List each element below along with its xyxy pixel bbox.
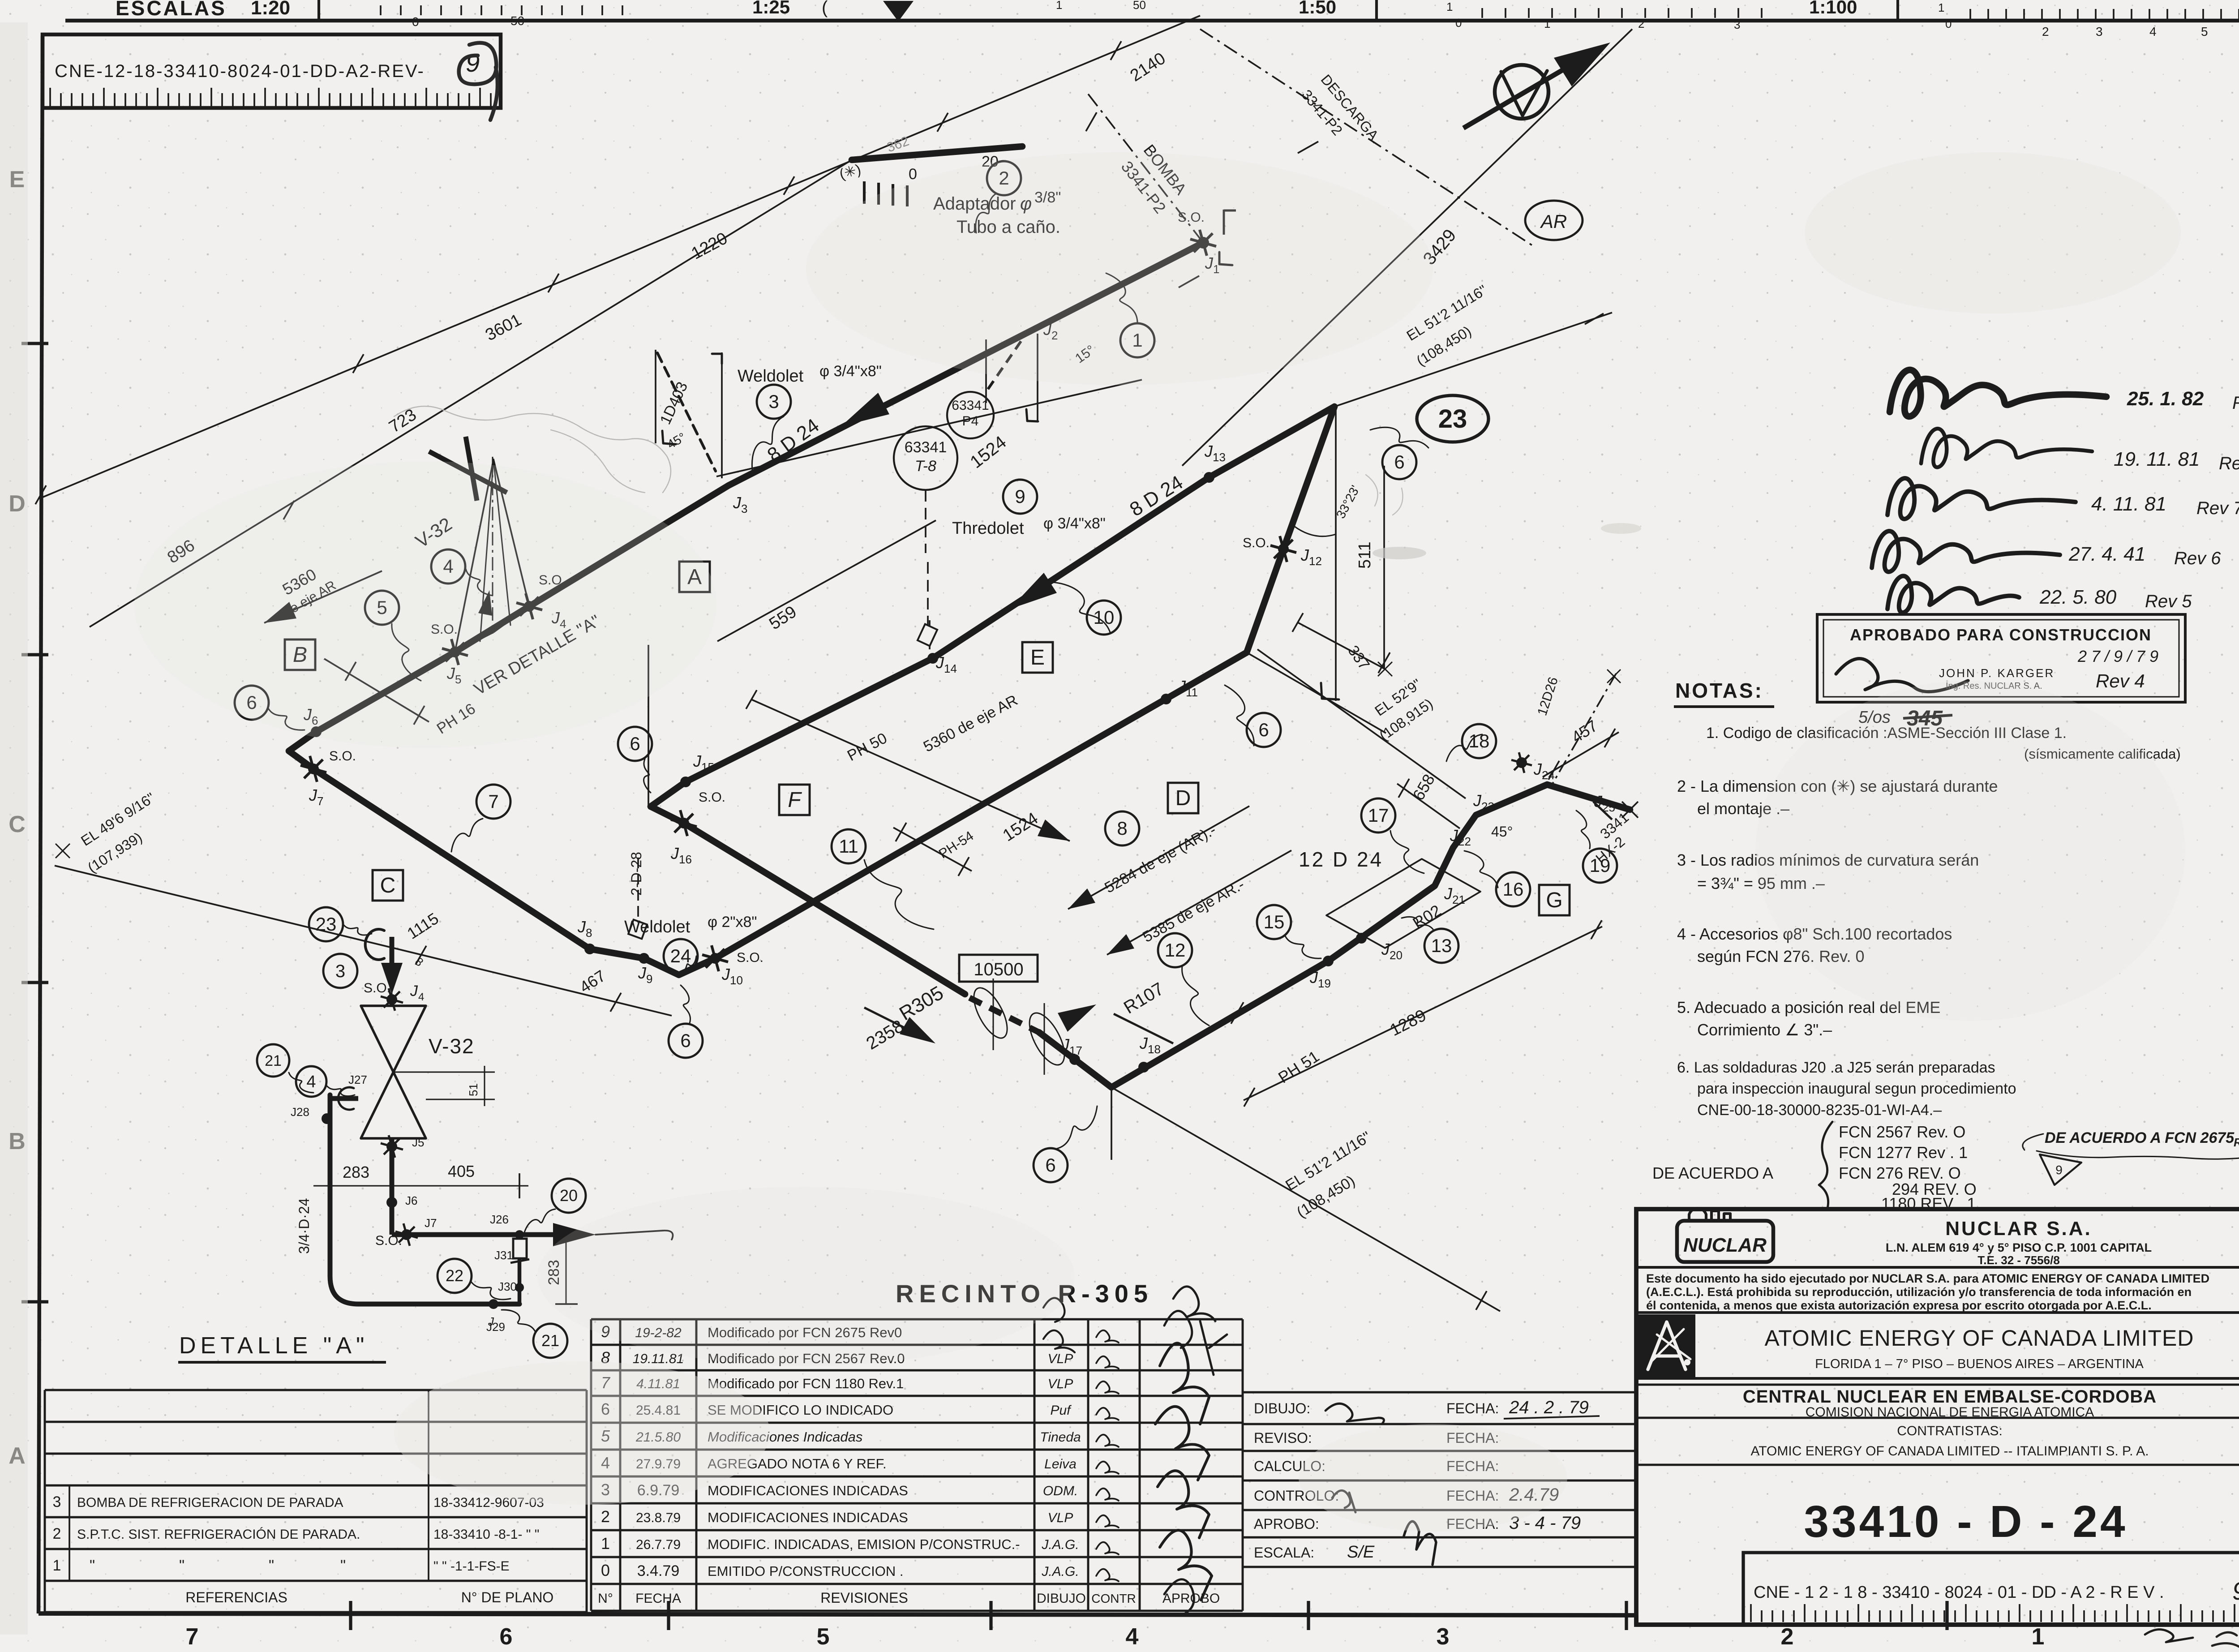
svg-text:9: 9 xyxy=(466,49,480,77)
svg-text:26.7.79: 26.7.79 xyxy=(636,1537,681,1552)
svg-text:Este documento ha sido ejecuta: Este documento ha sido ejecutado por NUC… xyxy=(1646,1272,2209,1285)
svg-text:J7: J7 xyxy=(425,1216,437,1230)
svg-text:φ 3/4"x8": φ 3/4"x8" xyxy=(1043,515,1106,532)
svg-text:9: 9 xyxy=(646,972,652,986)
svg-text:J: J xyxy=(670,844,679,862)
svg-text:2: 2 xyxy=(1638,17,1644,30)
svg-text:3: 3 xyxy=(2096,25,2103,39)
svg-text:ODM.: ODM. xyxy=(1043,1484,1078,1498)
svg-text:S.O.: S.O. xyxy=(364,981,390,995)
svg-text:J: J xyxy=(1061,1035,1070,1054)
svg-text:Weldolet: Weldolet xyxy=(738,367,804,386)
svg-text:0: 0 xyxy=(1945,17,1952,30)
svg-text:V-32: V-32 xyxy=(429,1034,475,1058)
svg-text:2: 2 xyxy=(2042,25,2049,39)
svg-text:1:100: 1:100 xyxy=(1809,0,1857,17)
svg-text:1: 1 xyxy=(53,1557,61,1574)
svg-text:1:50: 1:50 xyxy=(1299,0,1336,17)
svg-text:283: 283 xyxy=(343,1163,369,1181)
svg-text:J31: J31 xyxy=(494,1249,513,1262)
svg-text:(: ( xyxy=(822,0,828,17)
svg-text:D: D xyxy=(1175,786,1191,810)
svg-text:0: 0 xyxy=(412,15,419,29)
svg-text:24: 24 xyxy=(670,945,691,966)
svg-text:22. 5. 80: 22. 5. 80 xyxy=(2039,586,2117,608)
svg-text:S.O.: S.O. xyxy=(737,950,763,965)
svg-text:6: 6 xyxy=(1258,719,1269,740)
svg-text:CNE-12-18-33410-8024-01-DD-A2-: CNE-12-18-33410-8024-01-DD-A2-REV- xyxy=(55,61,425,81)
svg-text:Rev0: Rev0 xyxy=(2234,1136,2239,1149)
svg-text:J: J xyxy=(1309,968,1318,987)
svg-text:REFERENCIAS: REFERENCIAS xyxy=(185,1589,287,1605)
svg-text:20: 20 xyxy=(560,1186,578,1205)
svg-text:13: 13 xyxy=(1213,451,1226,464)
svg-text:27. 4. 41: 27. 4. 41 xyxy=(2068,543,2145,565)
svg-text:12 D 24: 12 D 24 xyxy=(1299,848,1383,871)
svg-text:Leiva: Leiva xyxy=(1044,1457,1077,1472)
svg-text:Tineda: Tineda xyxy=(1040,1430,1081,1445)
svg-text:24 . 2 . 79: 24 . 2 . 79 xyxy=(1509,1398,1589,1417)
svg-text:Corrimiento ∠ 3".–: Corrimiento ∠ 3".– xyxy=(1697,1021,1832,1039)
svg-text:VLP: VLP xyxy=(1048,1352,1073,1366)
svg-text:FCN 276 REV. O: FCN 276 REV. O xyxy=(1839,1164,1961,1182)
svg-text:S.O.: S.O. xyxy=(699,790,725,805)
svg-text:G: G xyxy=(1546,888,1562,912)
svg-text:DE ACUERDO A: DE ACUERDO A xyxy=(1652,1164,1773,1182)
svg-text:17: 17 xyxy=(1069,1044,1082,1057)
svg-text:F: F xyxy=(788,788,802,812)
svg-text:15: 15 xyxy=(1264,911,1285,932)
svg-text:23: 23 xyxy=(316,914,337,935)
svg-text:ESCALAS: ESCALAS xyxy=(116,0,227,20)
svg-text:Rev 7: Rev 7 xyxy=(2196,498,2239,518)
svg-text:3: 3 xyxy=(1734,18,1740,31)
svg-text:Puf: Puf xyxy=(1050,1403,1072,1418)
svg-text:J: J xyxy=(1300,546,1309,564)
svg-text:Rev 9: Rev 9 xyxy=(2232,393,2239,413)
svg-text:MODIFICACIONES INDICADAS: MODIFICACIONES INDICADAS xyxy=(708,1483,908,1498)
svg-text:AR: AR xyxy=(1540,211,1567,232)
svg-text:16: 16 xyxy=(1503,879,1524,900)
svg-text:J28: J28 xyxy=(291,1105,309,1119)
svg-text:J27: J27 xyxy=(348,1073,367,1086)
svg-text:CONTR: CONTR xyxy=(1091,1592,1136,1605)
svg-text:6. Las soldaduras J20 .a J25: 6. Las soldaduras J20 .a J25 serán prepa… xyxy=(1677,1059,1995,1076)
svg-text:9: 9 xyxy=(2055,1163,2063,1177)
svg-text:CNE-00-18-30000-8235-01-WI-A4.: CNE-00-18-30000-8235-01-WI-A4.– xyxy=(1697,1102,1942,1119)
svg-text:ATOMIC ENERGY OF CANADA LIMITE: ATOMIC ENERGY OF CANADA LIMITED xyxy=(1765,1326,2194,1351)
svg-text:J: J xyxy=(1450,826,1458,845)
svg-text:9: 9 xyxy=(1015,486,1025,507)
svg-text:S.O.: S.O. xyxy=(329,749,356,764)
svg-text:NOTAS:: NOTAS: xyxy=(1675,679,1763,702)
svg-text:6: 6 xyxy=(1394,451,1404,472)
svg-text:16: 16 xyxy=(679,853,692,866)
svg-text:2: 2 xyxy=(1781,1624,1794,1650)
svg-text:": " xyxy=(90,1557,95,1574)
svg-text:para inspeccion inaugural segu: para inspeccion inaugural segun procedim… xyxy=(1697,1080,2016,1097)
svg-text:EMITIDO P/CONSTRUCCION .: EMITIDO P/CONSTRUCCION . xyxy=(708,1563,903,1579)
svg-text:J: J xyxy=(488,1315,494,1328)
svg-text:3.4.79: 3.4.79 xyxy=(637,1562,680,1579)
svg-text:0: 0 xyxy=(909,166,917,183)
svg-text:63341: 63341 xyxy=(905,439,947,456)
svg-text:Rev 8: Rev 8 xyxy=(2219,454,2239,473)
svg-text:2 7 / 9 / 7 9: 2 7 / 9 / 7 9 xyxy=(2077,647,2158,665)
svg-text:7: 7 xyxy=(317,794,323,808)
svg-text:CNE - 1 2 - 1 8 - 33410 - 8024: CNE - 1 2 - 1 8 - 33410 - 8024 - 01 - DD… xyxy=(1754,1583,2164,1602)
svg-text:FCN 1277 Rev . 1: FCN 1277 Rev . 1 xyxy=(1839,1143,1968,1162)
svg-text:REVISO:: REVISO: xyxy=(1254,1430,1312,1446)
svg-text:J26: J26 xyxy=(490,1213,509,1226)
svg-text:APROBADO PARA CONSTRUCCION: APROBADO PARA CONSTRUCCION xyxy=(1850,626,2152,644)
svg-text:1180 REV . 1: 1180 REV . 1 xyxy=(1881,1194,1976,1213)
svg-text:φ 2"x8": φ 2"x8" xyxy=(708,914,757,931)
svg-text:2-D-28: 2-D-28 xyxy=(628,852,644,896)
svg-text:5: 5 xyxy=(2201,25,2208,39)
svg-text:MODIFICACIONES INDICADAS: MODIFICACIONES INDICADAS xyxy=(708,1510,908,1525)
svg-text:J: J xyxy=(1444,884,1453,903)
svg-text:Modificado por FCN 1180 Rev.1: Modificado por FCN 1180 Rev.1 xyxy=(708,1376,904,1391)
svg-text:22: 22 xyxy=(446,1266,463,1285)
svg-text:7: 7 xyxy=(186,1624,199,1650)
svg-text:3/4·D·24: 3/4·D·24 xyxy=(296,1198,312,1254)
svg-text:6: 6 xyxy=(630,733,640,754)
svg-text:él contenida, a menos que ex: él contenida, a menos que exista autoriz… xyxy=(1646,1299,2152,1312)
svg-text:1: 1 xyxy=(1544,17,1550,30)
svg-text:45°: 45° xyxy=(1491,824,1513,840)
svg-text:J: J xyxy=(1473,791,1482,810)
svg-text:5: 5 xyxy=(817,1624,830,1650)
svg-text:4: 4 xyxy=(2149,25,2157,39)
svg-text:511: 511 xyxy=(1355,541,1374,569)
svg-text:19: 19 xyxy=(1590,855,1611,876)
svg-text:L.N. ALEM 619 4° y 5° PISO C: L.N. ALEM 619 4° y 5° PISO C.P. 1001 CAP… xyxy=(1886,1241,2152,1254)
svg-text:C: C xyxy=(380,874,396,897)
svg-text:51: 51 xyxy=(467,1083,480,1096)
svg-text:15: 15 xyxy=(701,760,714,774)
svg-text:2: 2 xyxy=(53,1525,61,1542)
svg-text:8: 8 xyxy=(1117,818,1127,839)
svg-text:17: 17 xyxy=(1368,805,1389,826)
svg-text:J: J xyxy=(638,964,647,982)
svg-text:11: 11 xyxy=(839,836,858,857)
svg-text:J: J xyxy=(935,653,944,672)
svg-text:23: 23 xyxy=(1481,800,1494,813)
svg-text:": " xyxy=(340,1557,346,1574)
svg-text:4: 4 xyxy=(1126,1624,1139,1650)
svg-text:21: 21 xyxy=(541,1331,559,1350)
svg-text:S.P.T.C. SIST. REFRIGERACIÓN D: S.P.T.C. SIST. REFRIGERACIÓN DE PARADA. xyxy=(77,1527,360,1542)
svg-text:6: 6 xyxy=(680,1030,691,1051)
svg-text:1: 1 xyxy=(1938,1,1944,14)
svg-text:ESCALA:: ESCALA: xyxy=(1254,1545,1314,1561)
svg-text:Rev 5: Rev 5 xyxy=(2145,592,2192,611)
svg-text:COMISION NACIONAL DE ENERGIA A: COMISION NACIONAL DE ENERGIA ATOMICA xyxy=(1806,1405,2094,1420)
svg-text:405: 405 xyxy=(448,1162,475,1180)
svg-text:J30: J30 xyxy=(498,1280,517,1293)
svg-text:VLP: VLP xyxy=(1048,1377,1073,1391)
svg-text:CENTRAL NUCLEAR EN EMBALSE-COR: CENTRAL NUCLEAR EN EMBALSE-CORDOBA xyxy=(1743,1387,2157,1407)
svg-text:J: J xyxy=(721,965,730,983)
svg-text:1: 1 xyxy=(601,1534,610,1553)
svg-text:10500: 10500 xyxy=(974,960,1023,979)
svg-text:T.E. 32 - 7556/8: T.E. 32 - 7556/8 xyxy=(1977,1253,2060,1267)
svg-text:21: 21 xyxy=(265,1052,282,1069)
svg-text:N° DE PLANO: N° DE PLANO xyxy=(461,1589,554,1605)
svg-text:3: 3 xyxy=(768,391,779,412)
svg-text:DIBUJO:: DIBUJO: xyxy=(1254,1400,1310,1416)
svg-text:ATOMIC ENERGY OF CANADA LI: ATOMIC ENERGY OF CANADA LIMITED -- ITALI… xyxy=(1750,1444,2149,1459)
svg-text:NUCLAR: NUCLAR xyxy=(1683,1234,1767,1256)
svg-text:VLP: VLP xyxy=(1048,1510,1073,1525)
svg-text:J: J xyxy=(1177,677,1186,695)
svg-text:J5: J5 xyxy=(412,1136,424,1149)
svg-text:3: 3 xyxy=(335,961,345,981)
svg-text:DETALLE "A": DETALLE "A" xyxy=(179,1333,369,1359)
svg-text:Rev 4: Rev 4 xyxy=(2096,670,2145,691)
svg-text:DIBUJO: DIBUJO xyxy=(1037,1591,1086,1606)
svg-text:P4: P4 xyxy=(962,414,979,429)
svg-text:20: 20 xyxy=(1390,948,1403,962)
svg-text:13: 13 xyxy=(1431,935,1452,956)
svg-text:1: 1 xyxy=(1056,0,1062,12)
svg-text:(A.E.C.L.). Está prohibida su: (A.E.C.L.). Está prohibida su reproducci… xyxy=(1646,1285,2192,1299)
svg-text:S.O.: S.O. xyxy=(1243,536,1270,550)
svg-text:J: J xyxy=(733,493,742,512)
svg-text:19. 11. 81: 19. 11. 81 xyxy=(2114,448,2200,470)
svg-text:24: 24 xyxy=(1542,768,1555,782)
svg-text:J: J xyxy=(1204,442,1213,460)
svg-text:3: 3 xyxy=(1437,1624,1450,1650)
svg-text:S/E: S/E xyxy=(1347,1543,1375,1562)
svg-text:E: E xyxy=(1030,646,1045,669)
svg-text:6: 6 xyxy=(500,1624,513,1650)
svg-text:7: 7 xyxy=(488,791,498,812)
svg-text:FECHA: FECHA xyxy=(635,1591,681,1606)
svg-text:FLORIDA 1 – 7° PISO – BUE: FLORIDA 1 – 7° PISO – BUENOS AIRES – ARG… xyxy=(1815,1357,2144,1371)
svg-text:19: 19 xyxy=(1318,977,1331,990)
svg-text:FECHA:: FECHA: xyxy=(1446,1400,1499,1416)
svg-text:33410 - D - 24: 33410 - D - 24 xyxy=(1804,1497,2127,1547)
svg-text:J: J xyxy=(1139,1034,1148,1052)
svg-text:DE ACUERDO A FCN 2675: DE ACUERDO A FCN 2675 xyxy=(2045,1129,2235,1146)
svg-text:63341: 63341 xyxy=(952,398,989,413)
svg-text:Thredolet: Thredolet xyxy=(952,519,1024,538)
svg-text:J.A.G.: J.A.G. xyxy=(1041,1564,1079,1579)
svg-text:J: J xyxy=(1594,792,1603,811)
svg-text:1:20: 1:20 xyxy=(251,0,290,19)
svg-text:8: 8 xyxy=(586,926,592,940)
svg-text:APROBO:: APROBO: xyxy=(1254,1516,1319,1532)
svg-text:J: J xyxy=(1381,940,1390,958)
svg-text:18: 18 xyxy=(1148,1043,1161,1056)
svg-text:": " xyxy=(269,1557,274,1574)
svg-text:BOMBA DE REFRIGERACION DE PARA: BOMBA DE REFRIGERACION DE PARADA xyxy=(77,1495,343,1510)
svg-text:J6: J6 xyxy=(405,1194,417,1207)
svg-text:12: 12 xyxy=(1309,554,1322,568)
svg-text:21: 21 xyxy=(1452,893,1465,906)
svg-text:NUCLAR S.A.: NUCLAR S.A. xyxy=(1945,1218,2092,1240)
svg-text:11: 11 xyxy=(1186,686,1198,699)
svg-text:1: 1 xyxy=(2032,1624,2045,1650)
svg-text:9: 9 xyxy=(2232,1577,2239,1605)
svg-text:J: J xyxy=(309,786,317,804)
svg-text:Rev 6: Rev 6 xyxy=(2174,549,2221,568)
svg-text:Weldolet: Weldolet xyxy=(624,918,691,936)
svg-text:50: 50 xyxy=(1133,0,1146,12)
svg-text:FCN 2567 Rev. O: FCN 2567 Rev. O xyxy=(1839,1123,1965,1141)
svg-text:4. 11. 81: 4. 11. 81 xyxy=(2091,493,2166,515)
svg-text:MODIFIC. INDICADAS, EMISION P/: MODIFIC. INDICADAS, EMISION P/CONSTRUC.- xyxy=(708,1536,1020,1552)
svg-text:10: 10 xyxy=(730,974,743,987)
svg-text:4: 4 xyxy=(418,991,424,1003)
svg-text:APROBO: APROBO xyxy=(1162,1591,1220,1606)
svg-text:3: 3 xyxy=(741,502,747,515)
svg-text:14: 14 xyxy=(944,662,957,675)
svg-text:25. 1. 82: 25. 1. 82 xyxy=(2127,388,2204,410)
svg-text:J.A.G.: J.A.G. xyxy=(1041,1537,1079,1552)
svg-text:23.8.79: 23.8.79 xyxy=(636,1510,681,1525)
svg-text:1:25: 1:25 xyxy=(752,0,790,17)
svg-text:18-33410 -8-1- " ": 18-33410 -8-1- " " xyxy=(433,1527,539,1542)
svg-text:3: 3 xyxy=(53,1493,61,1510)
svg-text:1: 1 xyxy=(1446,0,1453,13)
svg-text:25: 25 xyxy=(1602,801,1615,814)
svg-text:J: J xyxy=(1533,760,1542,778)
svg-text:22: 22 xyxy=(1458,835,1471,848)
svg-text:REVISIONES: REVISIONES xyxy=(820,1590,908,1606)
svg-text:J: J xyxy=(577,918,586,936)
svg-text:CONTRATISTAS:: CONTRATISTAS: xyxy=(1897,1424,2003,1438)
svg-text:φ 3/4"x8": φ 3/4"x8" xyxy=(819,363,882,380)
svg-text:JOHN P. KARGER: JOHN P. KARGER xyxy=(1939,666,2055,680)
svg-text:N°: N° xyxy=(598,1591,613,1606)
svg-text:4: 4 xyxy=(306,1073,316,1091)
svg-text:0: 0 xyxy=(1455,16,1462,30)
svg-text:50: 50 xyxy=(510,14,524,28)
svg-text:J: J xyxy=(410,983,418,1000)
svg-text:0: 0 xyxy=(601,1561,610,1579)
svg-text:T-8: T-8 xyxy=(915,458,936,475)
svg-text:": " xyxy=(179,1557,184,1574)
svg-text:23: 23 xyxy=(1438,404,1467,433)
svg-text:2: 2 xyxy=(601,1507,610,1526)
svg-text:12: 12 xyxy=(1165,940,1186,961)
svg-text:" " -1-1-FS-E: " " -1-1-FS-E xyxy=(433,1559,510,1574)
svg-text:6: 6 xyxy=(1045,1154,1055,1176)
svg-text:J: J xyxy=(693,752,702,770)
